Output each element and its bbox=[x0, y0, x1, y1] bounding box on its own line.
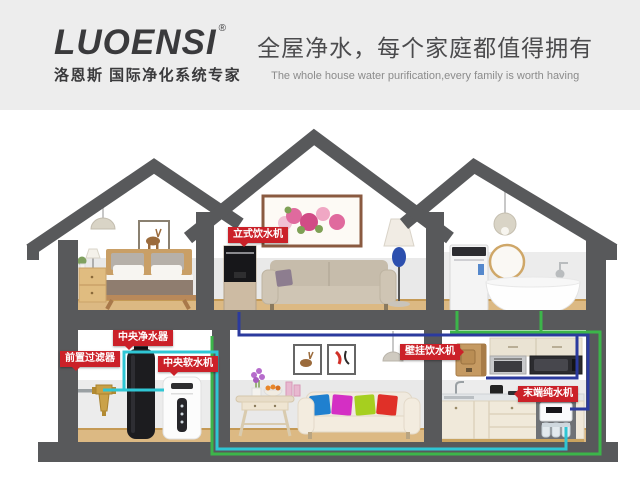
headline-block: 全屋净水，每个家庭都值得拥有 The whole house water pur… bbox=[257, 29, 593, 82]
central-water-softener-unit bbox=[163, 377, 201, 439]
logo-wordmark: LUOENSI bbox=[54, 25, 217, 60]
bed bbox=[100, 249, 196, 309]
standing-water-dispenser bbox=[224, 246, 256, 312]
eave-left bbox=[27, 244, 39, 260]
poster: LUOENSI ® 洛恩斯 国际净化系统专家 全屋净水，每个家庭都值得拥有 Th… bbox=[0, 0, 640, 481]
wall-art-deer-small bbox=[294, 345, 321, 374]
sofa-colorful bbox=[298, 392, 420, 439]
registered-mark: ® bbox=[219, 23, 226, 34]
washing-machine bbox=[450, 245, 488, 311]
label-pre-filter: 前置过滤器 bbox=[60, 351, 120, 367]
header: LUOENSI ® 洛恩斯 国际净化系统专家 全屋净水，每个家庭都值得拥有 Th… bbox=[0, 0, 640, 110]
headline-subtitle: The whole house water purification,every… bbox=[257, 70, 593, 82]
label-terminal-purifier: 末端纯水机 bbox=[518, 386, 578, 402]
upper-cabinets bbox=[490, 338, 582, 356]
brand-block: LUOENSI ® 洛恩斯 国际净化系统专家 bbox=[54, 25, 241, 85]
headline-title: 全屋净水，每个家庭都值得拥有 bbox=[257, 29, 593, 63]
wall-art-koi bbox=[328, 345, 355, 374]
label-central-softener: 中央软水机 bbox=[158, 356, 218, 372]
floor-divider bbox=[58, 310, 606, 330]
brand-tagline: 洛恩斯 国际净化系统专家 bbox=[54, 64, 241, 85]
sofa-upper bbox=[262, 260, 396, 311]
label-central-purifier: 中央净水器 bbox=[113, 330, 173, 346]
microwave bbox=[530, 356, 582, 374]
foundation-base bbox=[38, 442, 618, 462]
built-in-oven bbox=[490, 356, 526, 374]
label-standing-dispenser: 立式饮水机 bbox=[228, 227, 288, 243]
eave-right bbox=[605, 244, 617, 260]
label-wall-dispenser: 壁挂饮水机 bbox=[400, 344, 460, 360]
